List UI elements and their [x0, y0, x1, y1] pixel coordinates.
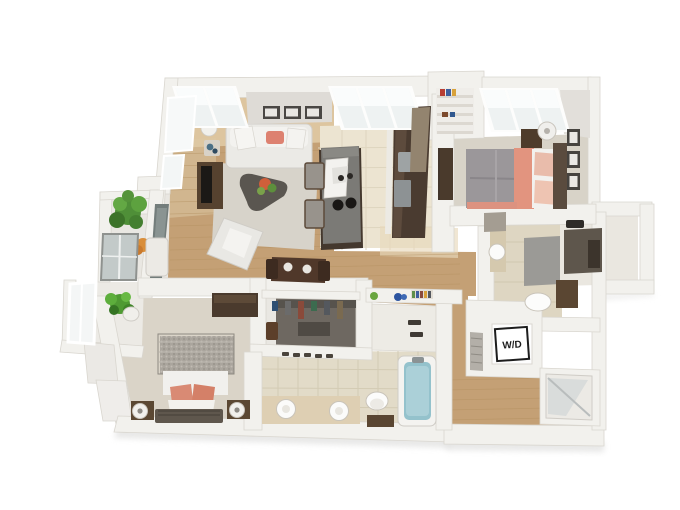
svg-text:W/D: W/D: [502, 339, 522, 351]
